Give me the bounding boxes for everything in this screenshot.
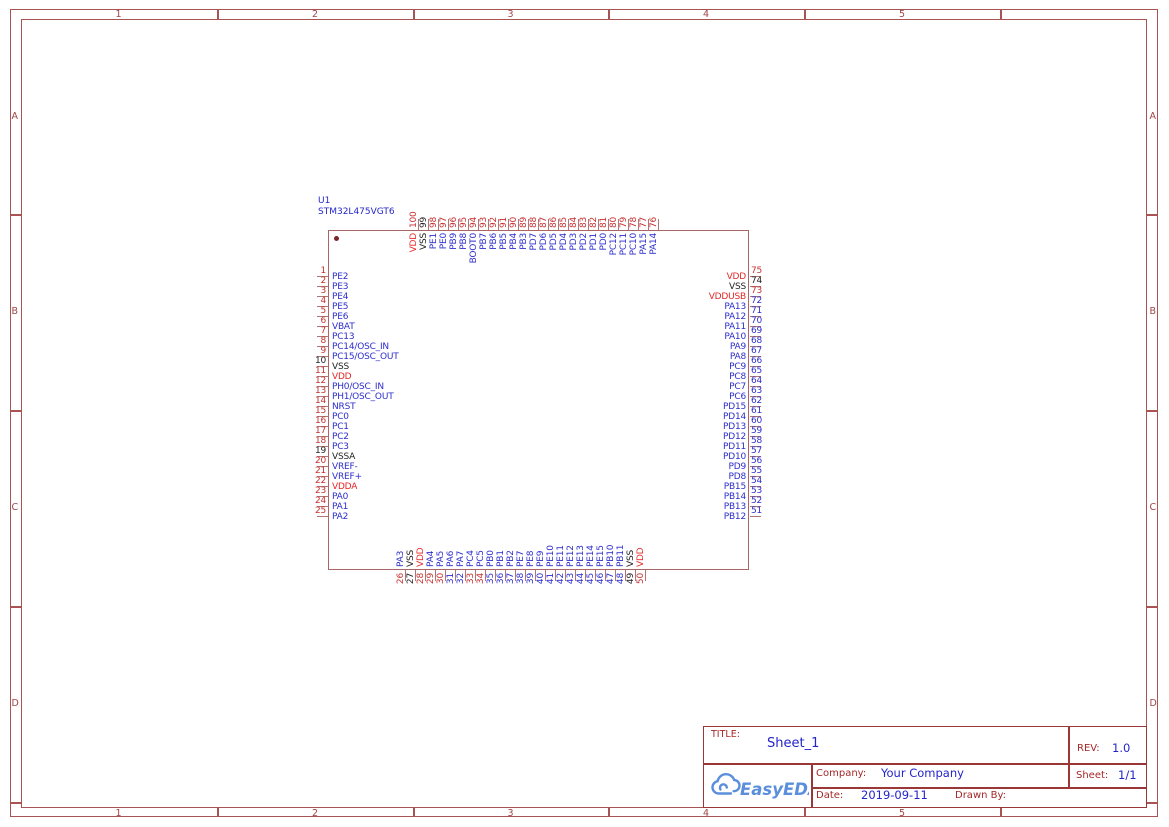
pin-label: PD8: [596, 472, 746, 482]
pin-label: VDDUSB: [596, 292, 746, 302]
title-label: TITLE:: [711, 729, 740, 740]
pin-number: 63: [751, 386, 762, 396]
pin-number: 98: [429, 217, 439, 228]
pin-number: 47: [606, 573, 616, 584]
pin-label: PB12: [596, 512, 746, 522]
pin-label: PD6: [539, 233, 549, 250]
pin-label: PB6: [489, 233, 499, 250]
pin-label: PC14/OSC_IN: [332, 342, 389, 352]
row-marker: D: [12, 699, 19, 709]
pin-number: 6: [294, 316, 326, 326]
sheet-number-label: Sheet:: [1076, 770, 1108, 781]
pin-label: VREF-: [332, 462, 358, 472]
pin-number: 48: [616, 573, 626, 584]
pin-number: 34: [476, 573, 486, 584]
pin-label: NRST: [332, 402, 355, 412]
pin-number: 77: [639, 217, 649, 228]
pin-label: PE8: [526, 551, 536, 567]
pin-label: PA2: [332, 512, 348, 522]
pin-number: 75: [751, 266, 762, 276]
easyeda-logo-text: EasyEDA: [740, 780, 809, 799]
pin-number: 32: [456, 573, 466, 584]
pin-number: 5: [294, 306, 326, 316]
pin-number: 59: [751, 426, 762, 436]
pin-number: 45: [586, 573, 596, 584]
pin-label: VSS: [626, 550, 636, 567]
frame-tick: [804, 9, 806, 19]
pin-label: VDD: [332, 372, 351, 382]
pin-label: PD4: [559, 233, 569, 250]
pin-label: PD12: [596, 432, 746, 442]
pin-label: PA0: [332, 492, 348, 502]
pin-label: PA14: [649, 233, 659, 255]
frame-tick: [10, 410, 21, 412]
pin-label: PD10: [596, 452, 746, 462]
pin-label: VSSA: [332, 452, 355, 462]
pin-label: PD2: [579, 233, 589, 250]
row-marker: B: [1150, 307, 1157, 317]
pin-number: 4: [294, 296, 326, 306]
pin-number: 100: [409, 211, 419, 228]
frame-tick: [1000, 808, 1002, 817]
pin-line[interactable]: [317, 516, 328, 517]
pin-label: PC5: [476, 550, 486, 567]
pin-number: 16: [294, 416, 326, 426]
pin-label: VDDA: [332, 482, 357, 492]
pin-number: 27: [406, 573, 416, 584]
frame-tick: [804, 808, 806, 817]
pin-label: PB3: [519, 233, 529, 250]
pin-number: 64: [751, 376, 762, 386]
pin-number: 13: [294, 386, 326, 396]
pin-number: 35: [486, 573, 496, 584]
column-marker: 1: [114, 809, 124, 819]
pin-number: 71: [751, 306, 762, 316]
pin-label: VDD: [636, 548, 646, 567]
pin-label: PC0: [332, 412, 349, 422]
pin-number: 79: [619, 217, 629, 228]
row-marker: B: [12, 307, 19, 317]
title-block-divider: [703, 763, 1147, 765]
pin-label: PB15: [596, 482, 746, 492]
frame-tick: [10, 802, 21, 804]
frame-tick: [608, 9, 610, 19]
pin-number: 33: [466, 573, 476, 584]
pin-number: 24: [294, 496, 326, 506]
column-marker: 5: [897, 809, 907, 819]
pin-label: PB8: [459, 233, 469, 250]
pin-number: 51: [751, 506, 762, 516]
pin-label: PE15: [596, 545, 606, 567]
pin-number: 61: [751, 406, 762, 416]
pin-number: 11: [294, 366, 326, 376]
pin-number: 20: [294, 456, 326, 466]
pin-number: 10: [294, 356, 326, 366]
pin-label: VDD: [596, 272, 746, 282]
pin-label: PC15/OSC_OUT: [332, 352, 399, 362]
pin-label: PE10: [546, 545, 556, 567]
pin-label: PC11: [619, 233, 629, 255]
frame-tick: [10, 606, 21, 608]
row-marker: C: [12, 503, 19, 513]
pin-label: PE11: [556, 545, 566, 567]
pin-number: 54: [751, 476, 762, 486]
pin-label: PA1: [332, 502, 348, 512]
pin-label: PD7: [529, 233, 539, 250]
pin-number: 23: [294, 486, 326, 496]
frame-tick: [413, 9, 415, 19]
pin-label: PD14: [596, 412, 746, 422]
pin-label: PC10: [629, 233, 639, 255]
pin-number: 46: [596, 573, 606, 584]
frame-tick: [608, 808, 610, 817]
pin-label: PE9: [536, 551, 546, 567]
pin-number: 12: [294, 376, 326, 386]
pin-label: PB10: [606, 545, 616, 567]
date-value[interactable]: 2019-09-11: [861, 789, 928, 801]
sheet-number-value[interactable]: 1/1: [1118, 769, 1137, 781]
pin-number: 8: [294, 336, 326, 346]
column-marker: 4: [701, 10, 711, 20]
pin-label: PB0: [486, 550, 496, 567]
rev-label: REV:: [1077, 743, 1100, 754]
pin-number: 93: [479, 217, 489, 228]
pin-number: 78: [629, 217, 639, 228]
pin-number: 15: [294, 406, 326, 416]
frame-tick: [1000, 9, 1002, 19]
pin-label: PC13: [332, 332, 354, 342]
pin-number: 88: [529, 217, 539, 228]
pin-number: 67: [751, 346, 762, 356]
pin-number: 40: [536, 573, 546, 584]
pin-number: 7: [294, 326, 326, 336]
pin-label: PD13: [596, 422, 746, 432]
pin-label: VBAT: [332, 322, 355, 332]
pin-number: 53: [751, 486, 762, 496]
date-label: Date:: [816, 790, 843, 801]
pin-number: 68: [751, 336, 762, 346]
pin-number: 56: [751, 456, 762, 466]
pin-label: PE12: [566, 545, 576, 567]
frame-tick: [1147, 410, 1158, 412]
frame-tick: [413, 808, 415, 817]
pin-number: 50: [636, 573, 646, 584]
pin-number: 14: [294, 396, 326, 406]
frame-tick: [217, 808, 219, 817]
pin-number: 25: [294, 506, 326, 516]
column-marker: 4: [701, 809, 711, 819]
pin-number: 21: [294, 466, 326, 476]
pin-number: 19: [294, 446, 326, 456]
pin-label: PC8: [596, 372, 746, 382]
pin1-indicator-dot: [334, 236, 339, 241]
pin-number: 72: [751, 296, 762, 306]
pin-label: VSS: [406, 550, 416, 567]
pin-line[interactable]: [750, 516, 761, 517]
pin-number: 3: [294, 286, 326, 296]
pin-label: VSS: [596, 282, 746, 292]
pin-number: 66: [751, 356, 762, 366]
pin-label: PA13: [596, 302, 746, 312]
pin-label: PA10: [596, 332, 746, 342]
pin-label: PE2: [332, 272, 348, 282]
pin-label: PA4: [426, 551, 436, 567]
pin-number: 31: [446, 573, 456, 584]
pin-number: 52: [751, 496, 762, 506]
pin-label: PE13: [576, 545, 586, 567]
pin-number: 28: [416, 573, 426, 584]
pin-number: 1: [294, 266, 326, 276]
pin-number: 80: [609, 217, 619, 228]
pin-label: PA7: [456, 551, 466, 567]
pin-label: PA15: [639, 233, 649, 255]
pin-number: 82: [589, 217, 599, 228]
pin-number: 74: [751, 276, 762, 286]
pin-label: PD5: [549, 233, 559, 250]
pin-label: PA12: [596, 312, 746, 322]
pin-label: PE1: [429, 233, 439, 249]
pin-number: 96: [449, 217, 459, 228]
pin-number: 17: [294, 426, 326, 436]
pin-label: PD1: [589, 233, 599, 250]
pin-number: 86: [549, 217, 559, 228]
pin-label: PB7: [479, 233, 489, 250]
column-marker: 3: [506, 10, 516, 20]
title-block-divider: [811, 763, 813, 808]
pin-number: 9: [294, 346, 326, 356]
column-marker: 3: [506, 809, 516, 819]
column-marker: 5: [897, 10, 907, 20]
row-marker: A: [12, 112, 19, 122]
pin-label: PD0: [599, 233, 609, 250]
pin-number: 49: [626, 573, 636, 584]
pin-number: 38: [516, 573, 526, 584]
pin-label: PC12: [609, 233, 619, 255]
pin-number: 42: [556, 573, 566, 584]
pin-number: 65: [751, 366, 762, 376]
pin-number: 57: [751, 446, 762, 456]
frame-tick: [217, 9, 219, 19]
cloud-icon: [712, 774, 739, 793]
pin-label: PB2: [506, 550, 516, 567]
pin-number: 81: [599, 217, 609, 228]
pin-label: PC2: [332, 432, 349, 442]
pin-label: VREF+: [332, 472, 362, 482]
pin-label: VDD: [416, 548, 426, 567]
pin-number: 60: [751, 416, 762, 426]
pin-number: 76: [649, 217, 659, 228]
pin-number: 99: [419, 217, 429, 228]
schematic-canvas[interactable]: U1 STM32L475VGT6 TITLE: Sheet_1 REV: 1.0…: [0, 0, 1169, 827]
pin-label: PE5: [332, 302, 348, 312]
pin-label: VSS: [332, 362, 349, 372]
sheet-title[interactable]: Sheet_1: [767, 738, 819, 750]
pin-number: 94: [469, 217, 479, 228]
pin-label: PB11: [616, 545, 626, 567]
pin-label: PB9: [449, 233, 459, 250]
frame-tick: [1147, 214, 1158, 216]
pin-label: VSS: [419, 233, 429, 250]
drawn-by-label: Drawn By:: [955, 790, 1006, 801]
pin-label: PB4: [509, 233, 519, 250]
pin-label: PD15: [596, 402, 746, 412]
pin-number: 29: [426, 573, 436, 584]
pin-label: PA11: [596, 322, 746, 332]
pin-label: PA9: [596, 342, 746, 352]
pin-number: 92: [489, 217, 499, 228]
frame-tick: [1147, 606, 1158, 608]
pin-number: 70: [751, 316, 762, 326]
frame-tick: [1147, 802, 1158, 804]
pin-number: 90: [509, 217, 519, 228]
pin-label: PC9: [596, 362, 746, 372]
pin-label: PC6: [596, 392, 746, 402]
pin-number: 22: [294, 476, 326, 486]
pin-number: 36: [496, 573, 506, 584]
pin-number: 26: [396, 573, 406, 584]
pin-label: PB14: [596, 492, 746, 502]
pin-label: PD9: [596, 462, 746, 472]
frame-tick: [10, 214, 21, 216]
row-marker: D: [1150, 699, 1157, 709]
pin-label: PH0/OSC_IN: [332, 382, 384, 392]
pin-label: PB1: [496, 550, 506, 567]
pin-number: 69: [751, 326, 762, 336]
easyeda-logo: EasyEDA: [707, 770, 809, 802]
component-value[interactable]: STM32L475VGT6: [318, 207, 395, 217]
pin-number: 87: [539, 217, 549, 228]
pin-number: 84: [569, 217, 579, 228]
column-marker: 2: [310, 809, 320, 819]
pin-number: 58: [751, 436, 762, 446]
pin-label: PC3: [332, 442, 349, 452]
pin-number: 89: [519, 217, 529, 228]
pin-label: PB5: [499, 233, 509, 250]
pin-label: PD3: [569, 233, 579, 250]
pin-label: PC7: [596, 382, 746, 392]
pin-label: PE4: [332, 292, 348, 302]
pin-number: 39: [526, 573, 536, 584]
pin-label: PE0: [439, 233, 449, 249]
pin-number: 85: [559, 217, 569, 228]
pin-number: 97: [439, 217, 449, 228]
column-marker: 1: [114, 10, 124, 20]
pin-number: 83: [579, 217, 589, 228]
pin-label: PC4: [466, 550, 476, 567]
row-marker: C: [1150, 503, 1157, 513]
pin-number: 30: [436, 573, 446, 584]
pin-label: PC1: [332, 422, 349, 432]
pin-label: PE6: [332, 312, 348, 322]
pin-label: PE3: [332, 282, 348, 292]
pin-number: 18: [294, 436, 326, 446]
pin-label: BOOT0: [469, 233, 479, 263]
pin-number: 43: [566, 573, 576, 584]
company-label: Company:: [816, 768, 866, 779]
pin-label: PE7: [516, 551, 526, 567]
company-value[interactable]: Your Company: [881, 767, 964, 779]
pin-label: PB13: [596, 502, 746, 512]
component-ref[interactable]: U1: [318, 196, 330, 206]
pin-label: PA5: [436, 551, 446, 567]
pin-label: PE14: [586, 545, 596, 567]
pin-number: 73: [751, 286, 762, 296]
rev-value[interactable]: 1.0: [1112, 742, 1130, 754]
pin-label: PA6: [446, 551, 456, 567]
title-block-divider: [1068, 726, 1070, 787]
pin-label: PA8: [596, 352, 746, 362]
pin-label: PD11: [596, 442, 746, 452]
pin-number: 44: [576, 573, 586, 584]
pin-number: 62: [751, 396, 762, 406]
pin-number: 91: [499, 217, 509, 228]
pin-number: 55: [751, 466, 762, 476]
pin-number: 2: [294, 276, 326, 286]
pin-number: 95: [459, 217, 469, 228]
row-marker: A: [1150, 112, 1157, 122]
pin-label: PH1/OSC_OUT: [332, 392, 394, 402]
pin-label: VDD: [409, 233, 419, 252]
pin-label: PA3: [396, 551, 406, 567]
column-marker: 2: [310, 10, 320, 20]
pin-number: 41: [546, 573, 556, 584]
pin-number: 37: [506, 573, 516, 584]
